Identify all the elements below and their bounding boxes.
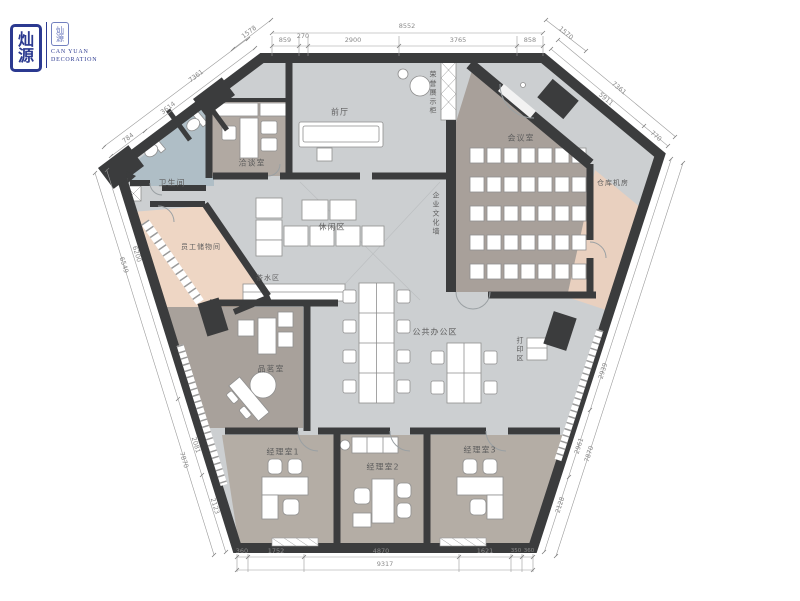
dim-bottom-seg-4: 1621 bbox=[477, 547, 494, 555]
label-manager-office-3: 经理室3 bbox=[463, 445, 496, 456]
dim-top-seg-1: 859 bbox=[279, 36, 291, 44]
dim-top-seg-3: 2900 bbox=[345, 36, 362, 44]
label-bathroom: 卫生间 bbox=[159, 178, 186, 189]
dim-bottom-seg-3: 4870 bbox=[373, 547, 390, 555]
dim-top-seg-2: 270 bbox=[297, 32, 309, 40]
label-staff-lockers: 员工储物间 bbox=[181, 242, 221, 252]
label-tea-room: 品茗室 bbox=[258, 364, 285, 375]
label-manager-office-2: 经理室2 bbox=[366, 462, 399, 473]
dim-bottom-seg-2: 1752 bbox=[268, 547, 285, 555]
floor-plan-page: 灿 源 灿源 CAN YUAN DECORATION bbox=[0, 0, 800, 601]
dim-top-seg-4: 3765 bbox=[450, 36, 467, 44]
label-negotiation-room: 洽谈室 bbox=[239, 158, 266, 169]
label-open-office: 公共办公区 bbox=[413, 327, 458, 338]
dim-bottom-seg-5: 350 bbox=[511, 548, 522, 554]
dim-bottom-seg-1: 360 bbox=[236, 547, 248, 555]
lobby-plant-large bbox=[410, 76, 430, 96]
label-print-area: 打印区 bbox=[515, 337, 525, 364]
lobby-plant-small bbox=[398, 69, 408, 79]
honor-display-cabinet bbox=[441, 62, 456, 120]
printer bbox=[527, 338, 547, 360]
label-leisure-area: 休闲区 bbox=[319, 222, 346, 233]
label-manager-office-1: 经理室1 bbox=[266, 447, 299, 458]
dim-bottom-seg-6: 360 bbox=[524, 548, 535, 554]
floor-plan-drawing bbox=[0, 0, 800, 601]
label-honor-display: 荣誉展示柜 bbox=[428, 71, 438, 116]
label-warehouse-server: 仓库机房 bbox=[597, 178, 629, 188]
label-meeting-room: 会议室 bbox=[508, 133, 535, 144]
label-culture-wall: 企业文化墙 bbox=[431, 192, 441, 237]
label-tea-station: 茶水区 bbox=[256, 273, 280, 283]
dim-bottom-total: 9317 bbox=[377, 560, 394, 568]
entry-door-knob bbox=[521, 83, 526, 88]
label-lobby: 前厅 bbox=[331, 107, 349, 118]
dim-top-seg-5: 858 bbox=[524, 36, 536, 44]
dim-top-total: 8552 bbox=[399, 22, 416, 30]
